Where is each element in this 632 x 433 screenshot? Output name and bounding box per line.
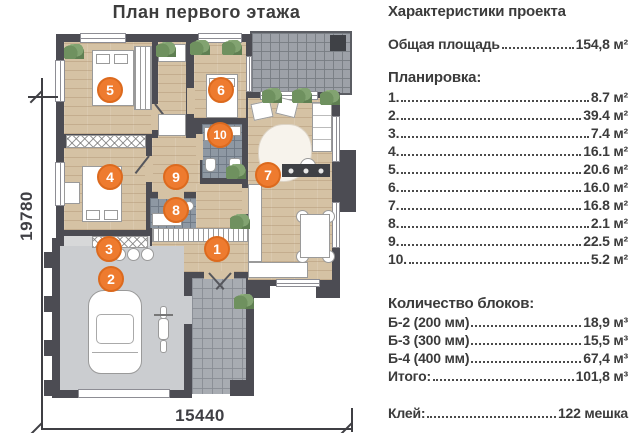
kitchen-counter-icon — [248, 262, 308, 278]
block-value: 67,4 м³ — [583, 349, 628, 367]
dotted-leader — [401, 136, 589, 138]
dotted-leader — [401, 226, 589, 228]
door-opening — [184, 296, 192, 324]
plant-icon — [222, 40, 242, 55]
motorcycle-body — [158, 318, 169, 340]
room-marker-10: 10 — [207, 122, 233, 148]
room-number: 1. — [388, 88, 399, 106]
floor-plan-page: План первого этажа — [0, 0, 632, 433]
dimension-line-left — [41, 78, 43, 430]
room-marker-2: 2 — [98, 266, 124, 292]
planning-row: 8.2.1 м² — [388, 214, 628, 232]
page-title: План первого этажа — [104, 2, 309, 23]
window — [80, 33, 126, 43]
window — [332, 116, 340, 162]
plant-icon — [64, 44, 84, 59]
pillow-icon — [104, 210, 118, 220]
stove-icon — [282, 164, 330, 177]
room-marker-9: 9 — [163, 164, 189, 190]
plant-icon — [226, 164, 246, 179]
pillow-icon — [114, 54, 128, 64]
washer-icon — [127, 248, 140, 261]
window — [276, 279, 320, 287]
room-number: 4. — [388, 142, 399, 160]
wardrobe-icon — [66, 135, 146, 148]
dotted-leader — [471, 361, 581, 363]
room-area: 39.4 м² — [583, 106, 628, 124]
wall-pillar — [316, 286, 340, 298]
planning-row: 9.22.5 м² — [388, 232, 628, 250]
room-area: 16.0 м² — [583, 178, 628, 196]
glue-value: 122 мешка — [558, 404, 628, 422]
garage-gate — [78, 389, 170, 398]
wall-chimney-block — [340, 150, 356, 212]
dimension-extension — [351, 408, 353, 432]
dotted-leader — [427, 416, 556, 418]
dotted-leader — [401, 100, 589, 102]
window — [246, 56, 252, 92]
motorcycle-wheel — [160, 340, 167, 353]
car-roof — [96, 314, 134, 344]
glue-label: Клей: — [388, 404, 425, 422]
plant-icon — [320, 90, 340, 105]
door-opening — [187, 88, 195, 114]
wardrobe-icon — [152, 228, 248, 242]
plant-icon — [262, 88, 282, 103]
planning-row: 7.16.8 м² — [388, 196, 628, 214]
block-value: 18,9 м³ — [583, 313, 628, 331]
project-characteristics-panel: Характеристики проекта Общая площадь 154… — [388, 3, 628, 422]
room-area: 20.6 м² — [583, 160, 628, 178]
motorcycle-handlebar — [154, 314, 173, 316]
room-number: 10. — [388, 250, 407, 268]
sofa-icon — [312, 102, 332, 152]
wall-pillar — [44, 252, 56, 268]
dotted-leader — [502, 47, 574, 49]
cabinet-icon — [158, 114, 186, 136]
planning-row: 10.5.2 м² — [388, 250, 628, 268]
planning-row: 6.16.0 м² — [388, 178, 628, 196]
room-area: 2.1 м² — [591, 214, 628, 232]
room-marker-7: 7 — [255, 162, 281, 188]
glue-row: Клей: 122 мешка — [388, 404, 628, 422]
blocks-heading: Количество блоков: — [388, 295, 628, 312]
dotted-leader — [471, 343, 581, 345]
planning-row: 1.8.7 м² — [388, 88, 628, 106]
planning-heading: Планировка: — [388, 69, 628, 86]
block-row: Б-4 (400 мм)67,4 м³ — [388, 349, 628, 367]
dotted-leader — [401, 118, 581, 120]
room-marker-6: 6 — [208, 77, 234, 103]
room-number: 7. — [388, 196, 399, 214]
block-label: Б-3 (300 мм) — [388, 331, 469, 349]
room-marker-5: 5 — [97, 77, 123, 103]
kitchen-counter-icon — [248, 184, 262, 262]
room-area: 5.2 м² — [591, 250, 628, 268]
panel-heading: Характеристики проекта — [388, 3, 628, 20]
dotted-leader — [433, 379, 574, 381]
blocks-total-value: 101,8 м³ — [576, 367, 628, 385]
room-number: 6. — [388, 178, 399, 196]
washer-icon — [141, 248, 154, 261]
terrace-chimney — [330, 35, 346, 51]
car-line — [92, 352, 138, 353]
planning-row: 4.16.1 м² — [388, 142, 628, 160]
room-area: 8.7 м² — [591, 88, 628, 106]
wall-pillar — [44, 380, 56, 396]
total-area-row: Общая площадь 154,8 м² — [388, 35, 628, 53]
dotted-leader — [401, 244, 581, 246]
blocks-total-row: Итого: 101,8 м³ — [388, 367, 628, 385]
total-area-label: Общая площадь — [388, 35, 500, 53]
room-number: 9. — [388, 232, 399, 250]
wardrobe-icon — [134, 46, 152, 110]
room-area: 22.5 м² — [583, 232, 628, 250]
dimension-height-label: 19780 — [17, 181, 37, 251]
bidet-icon — [205, 158, 216, 172]
room-marker-3: 3 — [96, 236, 122, 262]
block-row: Б-2 (200 мм)18,9 м³ — [388, 313, 628, 331]
room-number: 2. — [388, 106, 399, 124]
dimension-width-label: 15440 — [160, 406, 240, 426]
room-number: 8. — [388, 214, 399, 232]
wall-pillar — [44, 340, 56, 356]
plant-icon — [156, 42, 176, 57]
armchair-icon — [64, 182, 80, 204]
room-area: 16.8 м² — [583, 196, 628, 214]
room-area: 16.1 м² — [583, 142, 628, 160]
room-number: 3. — [388, 124, 399, 142]
plant-icon — [230, 214, 250, 229]
room-marker-4: 4 — [97, 164, 123, 190]
plant-icon — [234, 294, 254, 309]
block-value: 15,5 м³ — [583, 331, 628, 349]
dimension-line-bottom — [41, 428, 353, 430]
room-area: 7.4 м² — [591, 124, 628, 142]
dotted-leader — [401, 208, 581, 210]
room-number: 5. — [388, 160, 399, 178]
block-row: Б-3 (300 мм)15,5 м³ — [388, 331, 628, 349]
dotted-leader — [409, 262, 589, 264]
plant-icon — [190, 40, 210, 55]
planning-row: 5.20.6 м² — [388, 160, 628, 178]
room-marker-8: 8 — [163, 197, 189, 223]
pillow-icon — [86, 210, 100, 220]
dotted-leader — [401, 172, 581, 174]
room-marker-1: 1 — [204, 236, 230, 262]
wall-porch-corner — [230, 380, 254, 396]
planning-row: 2.39.4 м² — [388, 106, 628, 124]
wall-pillar — [44, 296, 56, 312]
block-label: Б-4 (400 мм) — [388, 349, 469, 367]
door-opening — [196, 134, 203, 160]
total-area-value: 154,8 м² — [576, 35, 628, 53]
window — [332, 202, 340, 248]
dining-table-icon — [300, 214, 330, 258]
blocks-total-label: Итого: — [388, 367, 431, 385]
wall-pillar — [254, 286, 270, 298]
dotted-leader — [401, 154, 581, 156]
block-label: Б-2 (200 мм) — [388, 313, 469, 331]
plant-icon — [292, 88, 312, 103]
pillow-icon — [96, 54, 110, 64]
dotted-leader — [471, 325, 581, 327]
planning-row: 3.7.4 м² — [388, 124, 628, 142]
dotted-leader — [401, 190, 581, 192]
